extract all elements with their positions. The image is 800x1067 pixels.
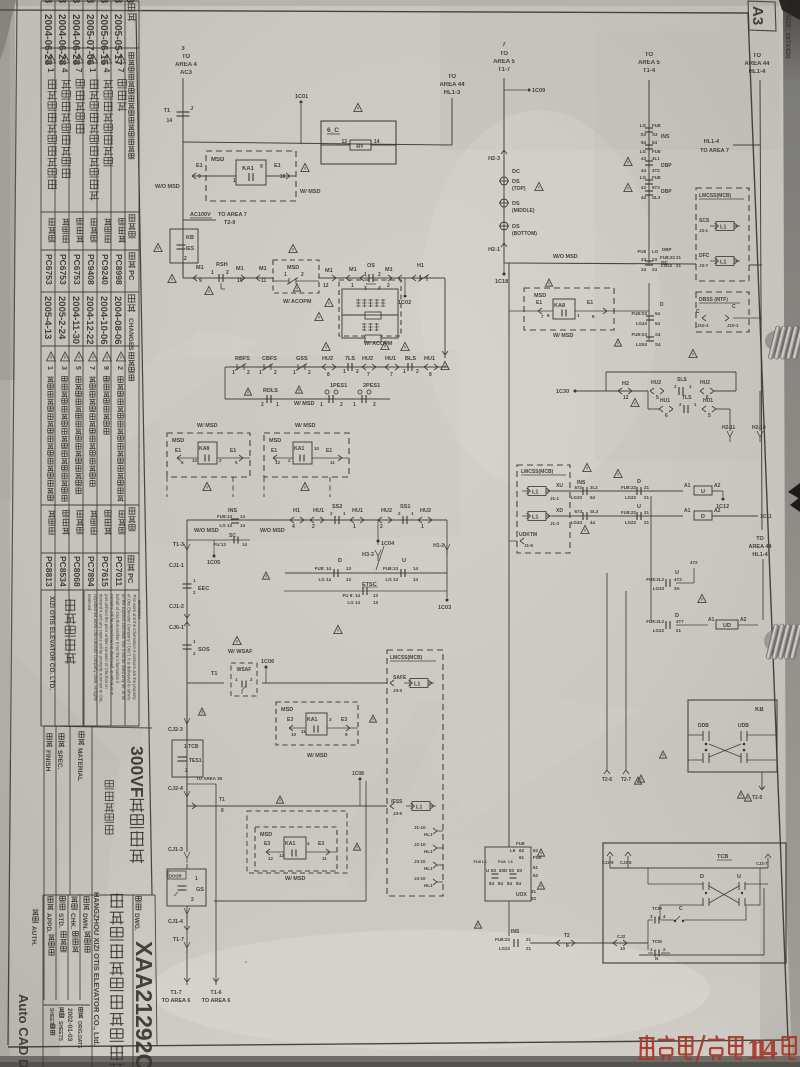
svg-text:MSD: MSD: [287, 265, 299, 271]
svg-text:CBFS: CBFS: [262, 356, 277, 362]
svg-text:1: 1: [233, 178, 236, 184]
svg-text:M1: M1: [236, 266, 244, 272]
svg-text:12: 12: [279, 853, 285, 858]
svg-text:2: 2: [308, 370, 311, 376]
svg-text:3A: 3A: [674, 586, 681, 591]
svg-text:LG33: LG33: [653, 586, 665, 591]
svg-text:4: 4: [292, 524, 295, 530]
svg-text:1: 1: [211, 270, 214, 276]
svg-text:2: 2: [312, 524, 315, 530]
svg-text:13: 13: [346, 577, 352, 582]
svg-text:FU 8: 14: FU 8: 14: [342, 593, 360, 598]
svg-text:J1-1: J1-1: [550, 496, 560, 501]
svg-text:672: 672: [574, 485, 582, 490]
svg-text:H3-3: H3-3: [362, 552, 374, 558]
svg-text:A1: A1: [708, 617, 715, 623]
svg-text:U: U: [701, 489, 705, 495]
svg-text:XD: XD: [556, 508, 563, 514]
svg-text:KB: KB: [755, 707, 764, 713]
svg-text:SC: SC: [229, 533, 236, 539]
svg-text:CJ2-9: CJ2-9: [602, 860, 614, 865]
svg-text:MSD: MSD: [211, 157, 225, 163]
svg-text:W/ MSD: W/ MSD: [197, 423, 217, 429]
svg-text:2: 2: [340, 402, 343, 408]
svg-text:6: 6: [221, 808, 224, 814]
svg-text:21: 21: [676, 255, 682, 260]
svg-text:E3: E3: [287, 717, 293, 723]
svg-text:CJ1-2: CJ1-2: [169, 604, 184, 610]
svg-text:PC7011: PC7011: [114, 556, 124, 587]
svg-text:24: 24: [641, 267, 647, 272]
svg-text:J3-3: J3-3: [393, 688, 403, 693]
svg-text:4: 4: [102, 68, 111, 73]
svg-text:L1: L1: [416, 805, 422, 811]
svg-text:XU: XU: [556, 483, 563, 489]
svg-text:LG 13: LG 13: [385, 577, 398, 582]
svg-text:E3: E3: [341, 717, 347, 723]
svg-text:12: 12: [268, 856, 274, 861]
svg-text:KA1: KA1: [307, 717, 317, 723]
svg-text:61: 61: [533, 865, 539, 870]
svg-text:AREA 44: AREA 44: [748, 544, 772, 550]
svg-text:TO: TO: [500, 51, 509, 57]
svg-text:21: 21: [676, 628, 682, 633]
svg-text:2: 2: [301, 272, 304, 278]
svg-text:CJ2: CJ2: [617, 934, 626, 939]
svg-text:LG43: LG43: [571, 520, 583, 525]
svg-text:2004-08-06: 2004-08-06: [112, 296, 123, 345]
svg-text:FU8: FU8: [498, 859, 506, 864]
svg-text:LG22: LG22: [661, 263, 673, 268]
svg-text:472: 472: [690, 560, 698, 565]
svg-text:FU8: FU8: [652, 175, 661, 180]
svg-text:SCS: SCS: [699, 218, 710, 224]
svg-text:10: 10: [237, 278, 243, 284]
svg-text:7: 7: [367, 372, 370, 378]
svg-text:DWG.: DWG.: [133, 913, 140, 931]
svg-text:1C02: 1C02: [398, 300, 411, 306]
svg-text:LG 14: LG 14: [318, 577, 331, 582]
svg-text:W/ ACOPM: W/ ACOPM: [283, 299, 312, 305]
svg-text:CJ2-3: CJ2-3: [168, 727, 183, 733]
svg-text:FU8:22: FU8:22: [621, 485, 637, 490]
svg-text:XIZI OTIS ELEVATOR CO. LTD.: XIZI OTIS ELEVATOR CO. LTD.: [48, 596, 55, 690]
svg-text:HU2: HU2: [651, 380, 661, 386]
svg-text:1C11: 1C11: [760, 514, 772, 520]
svg-text:12: 12: [275, 460, 281, 465]
svg-text:1C06: 1C06: [261, 659, 274, 665]
svg-text:9: 9: [102, 366, 109, 370]
svg-text:D: D: [338, 558, 342, 564]
svg-text:A2: A2: [714, 508, 721, 514]
svg-text:14: 14: [242, 542, 248, 547]
svg-text:ORIG.DATE: ORIG.DATE: [76, 1021, 82, 1049]
svg-text:6_C: 6_C: [327, 127, 339, 134]
svg-text:Auto CAD Draw: Auto CAD Draw: [16, 994, 31, 1067]
svg-text:S4: S4: [655, 332, 661, 337]
svg-text:LG22: LG22: [653, 628, 665, 633]
svg-text:21: 21: [676, 263, 682, 268]
svg-text:LG: LG: [652, 249, 659, 254]
svg-text:1C30: 1C30: [556, 389, 569, 395]
svg-text:A1: A1: [684, 508, 691, 514]
svg-text:2004-06-28: 2004-06-28: [112, 0, 123, 4]
svg-text:FU:13: FU:13: [213, 542, 226, 547]
svg-text:on the express condition that: on the express condition that it will be…: [121, 594, 126, 701]
svg-text:T1-6: T1-6: [210, 990, 221, 996]
svg-text:2005-4-13: 2005-4-13: [42, 296, 53, 339]
svg-text:L1: L1: [720, 225, 726, 231]
svg-text:E1: E1: [326, 448, 332, 454]
svg-text:(TOP): (TOP): [512, 186, 526, 192]
svg-text:M1: M1: [385, 267, 393, 273]
svg-text:W/O MSD: W/O MSD: [194, 528, 219, 534]
svg-text:D: D: [701, 514, 705, 520]
svg-text:43: 43: [641, 185, 647, 190]
svg-text:114: 114: [747, 1033, 778, 1066]
svg-text:FU8: FU8: [533, 855, 542, 860]
svg-text:83: 83: [517, 868, 523, 873]
svg-text:1C01: 1C01: [295, 94, 308, 100]
svg-text:LG: LG: [640, 123, 647, 128]
svg-text:31: 31: [531, 889, 537, 894]
svg-text:E3: E3: [264, 841, 270, 847]
svg-text:part,without the prior written: part,without the prior written consent o…: [104, 594, 109, 689]
svg-text:CHK.: CHK.: [69, 913, 76, 929]
svg-text:TO: TO: [756, 536, 764, 542]
svg-text:SL3: SL3: [652, 195, 661, 200]
svg-text:UDKTM: UDKTM: [519, 532, 537, 538]
svg-text:INS: INS: [661, 134, 670, 140]
svg-text:A1: A1: [684, 483, 691, 489]
svg-text:2: 2: [378, 272, 381, 278]
svg-text:IES: IES: [186, 246, 195, 252]
svg-text:HL1-4: HL1-4: [749, 69, 766, 75]
svg-text:This work and the information: This work and the information it contain…: [132, 594, 137, 701]
svg-text:INS: INS: [511, 929, 520, 935]
svg-text:FU8: FU8: [652, 149, 661, 154]
svg-text:14: 14: [413, 566, 419, 571]
svg-text:W/ MSD: W/ MSD: [307, 753, 327, 759]
svg-text:83: 83: [491, 868, 497, 873]
svg-text:DS: DS: [512, 224, 520, 230]
svg-text:KA8: KA8: [554, 303, 565, 309]
svg-text:DBSS (MTF): DBSS (MTF): [699, 297, 728, 303]
svg-text:LG22: LG22: [499, 946, 511, 951]
svg-text:DBP: DBP: [661, 189, 672, 195]
svg-text:13: 13: [373, 600, 379, 605]
svg-text:W/ MSD: W/ MSD: [294, 401, 314, 407]
svg-text:TO AREA 6: TO AREA 6: [162, 998, 191, 1004]
svg-text:TCM: TCM: [652, 939, 662, 944]
svg-text:FU8:22: FU8:22: [660, 255, 676, 260]
svg-text:Unpublished Work-Otis Elevator: Unpublished Work-Otis Elevator Company 1…: [93, 594, 98, 701]
svg-text:AREA 5: AREA 5: [493, 59, 515, 65]
svg-text:12: 12: [623, 395, 629, 401]
svg-text:1: 1: [293, 370, 296, 376]
svg-text:SS2: SS2: [332, 504, 342, 510]
svg-text:AREA 5: AREA 5: [638, 60, 660, 66]
svg-text:4: 4: [60, 68, 69, 73]
svg-text:2: 2: [184, 256, 187, 262]
svg-text:E1: E1: [274, 163, 281, 169]
svg-text:10: 10: [291, 732, 297, 737]
svg-text:DBP: DBP: [661, 163, 672, 169]
svg-text:XAA21292C: XAA21292C: [131, 941, 157, 1067]
svg-text:T1: T1: [211, 671, 217, 677]
svg-text:J1-3: J1-3: [550, 521, 560, 526]
svg-text:21: 21: [526, 937, 532, 942]
svg-text:TO AREA 35: TO AREA 35: [196, 776, 223, 781]
svg-text:2PES1: 2PES1: [363, 383, 380, 389]
svg-text:H2-11: H2-11: [722, 425, 736, 431]
svg-text:L1: L1: [414, 682, 420, 688]
svg-text:DOOR: DOOR: [169, 874, 182, 879]
svg-text:CJ2-7: CJ2-7: [756, 861, 768, 866]
svg-text:W/O MSD: W/O MSD: [553, 254, 578, 260]
svg-text:J3-5: J3-5: [393, 811, 403, 816]
svg-text:FU8:13: FU8:13: [217, 514, 233, 519]
svg-text:10: 10: [192, 458, 198, 463]
svg-text:A2: A2: [714, 483, 721, 489]
svg-text:HANGZHOU XIZI OTIS ELEVATOR CO: HANGZHOU XIZI OTIS ELEVATOR CO., Ltd.: [92, 892, 101, 1046]
svg-text:1C09: 1C09: [532, 88, 545, 94]
svg-text:E1: E1: [587, 300, 593, 306]
svg-text:J1-6: J1-6: [524, 543, 534, 548]
svg-text:C: C: [732, 304, 736, 310]
svg-text:MSD: MSD: [172, 438, 184, 444]
svg-text:L1: L1: [532, 490, 538, 496]
svg-text:21: 21: [644, 510, 650, 515]
svg-text:1: 1: [343, 369, 346, 375]
svg-text:LMCSS(MCB): LMCSS(MCB): [699, 193, 732, 199]
svg-text:1: 1: [320, 402, 323, 408]
svg-text:21: 21: [644, 495, 650, 500]
svg-text:1: 1: [403, 369, 406, 375]
svg-text:PC6753: PC6753: [58, 254, 68, 285]
svg-text:HU2: HU2: [322, 356, 333, 362]
svg-text:L6: L6: [482, 859, 487, 864]
svg-text:J2-10: J2-10: [414, 842, 426, 847]
svg-text:TO AREA 7: TO AREA 7: [218, 212, 247, 218]
svg-text:2004-10-06: 2004-10-06: [98, 296, 109, 345]
svg-text:RDLS: RDLS: [263, 388, 278, 394]
svg-text:PC7894: PC7894: [86, 556, 96, 587]
svg-text:7: 7: [88, 366, 95, 370]
svg-text:6: 6: [665, 413, 668, 419]
svg-text:2002-01-03: 2002-01-03: [66, 1008, 73, 1042]
svg-text:GSS: GSS: [296, 356, 308, 362]
svg-text:9: 9: [260, 164, 263, 170]
svg-text:SLS: SLS: [677, 377, 687, 383]
svg-text:(BOTTOM): (BOTTOM): [512, 231, 537, 237]
svg-text:T2-9: T2-9: [224, 220, 235, 226]
svg-text:E3: E3: [318, 841, 324, 847]
svg-text:W/ ACOPM: W/ ACOPM: [364, 341, 393, 347]
svg-text:2004-06-28: 2004-06-28: [98, 0, 109, 4]
svg-text:OS: OS: [367, 263, 375, 269]
svg-text:4T2: 4T2: [652, 168, 660, 173]
svg-text:43: 43: [641, 156, 647, 161]
svg-text:KA1: KA1: [242, 166, 255, 172]
svg-text:W/ MSD: W/ MSD: [285, 876, 305, 882]
svg-text:J4-10: J4-10: [414, 876, 426, 881]
svg-text:5: 5: [74, 366, 81, 370]
svg-text:FU8:22: FU8:22: [621, 510, 637, 515]
svg-text:AREA 44: AREA 44: [744, 61, 770, 67]
svg-text:2: 2: [116, 366, 123, 370]
svg-text:M1: M1: [325, 268, 333, 274]
svg-text:1: 1: [88, 68, 97, 73]
svg-text:21: 21: [644, 485, 650, 490]
svg-text:HL1: HL1: [424, 883, 433, 888]
svg-text:C: C: [696, 309, 700, 315]
svg-text:9: 9: [198, 174, 201, 180]
svg-text:TLS: TLS: [682, 395, 692, 401]
svg-text:54: 54: [590, 495, 596, 500]
svg-text:CJ2-8: CJ2-8: [620, 860, 632, 865]
svg-text:E1: E1: [196, 163, 203, 169]
svg-text:CJ2-4: CJ2-4: [168, 786, 184, 792]
svg-text:11: 11: [322, 856, 327, 861]
svg-text:BLS: BLS: [405, 356, 416, 362]
svg-text:1: 1: [364, 272, 367, 278]
svg-text:61: 61: [519, 855, 525, 860]
svg-text:4T2: 4T2: [674, 577, 682, 582]
svg-text:DWN.: DWN.: [81, 913, 88, 931]
svg-text:PC7615: PC7615: [100, 556, 110, 587]
svg-text:T2-6: T2-6: [602, 777, 613, 783]
svg-text:TO: TO: [753, 53, 762, 59]
svg-text:4T7: 4T7: [676, 619, 684, 624]
svg-text:U: U: [675, 570, 679, 576]
svg-text:H1: H1: [293, 508, 300, 514]
svg-text:H1-2: H1-2: [433, 543, 444, 549]
svg-text:HU2: HU2: [700, 380, 710, 386]
svg-text:13: 13: [373, 593, 379, 598]
svg-text:LMCSS(MCB): LMCSS(MCB): [521, 469, 554, 475]
svg-text:H2-1: H2-1: [488, 247, 500, 253]
svg-text:8: 8: [327, 372, 330, 378]
svg-text:PC6753: PC6753: [72, 254, 82, 285]
svg-text:TO AREA 6: TO AREA 6: [202, 998, 231, 1004]
svg-text:9: 9: [199, 278, 202, 284]
svg-text:2005-2-24: 2005-2-24: [56, 296, 67, 340]
svg-text:A2: A2: [740, 617, 747, 623]
svg-text:DS: DS: [512, 201, 520, 207]
svg-text:PC: PC: [126, 573, 135, 584]
svg-text:44: 44: [590, 520, 596, 525]
svg-text:2004-12-22: 2004-12-22: [84, 296, 95, 345]
svg-text:PC8813: PC8813: [44, 556, 54, 587]
svg-text:10: 10: [280, 174, 286, 180]
svg-text:RBFS: RBFS: [235, 356, 250, 362]
svg-text:84: 84: [489, 881, 495, 886]
svg-text:1PES1: 1PES1: [330, 383, 347, 389]
svg-text:2: 2: [356, 369, 359, 375]
svg-text:1: 1: [421, 524, 424, 530]
svg-text:(MIDDLE): (MIDDLE): [512, 208, 535, 214]
svg-text:SHEET: SHEET: [48, 1008, 54, 1025]
svg-text:7: 7: [116, 68, 125, 73]
svg-text:TO AREA 7: TO AREA 7: [700, 148, 729, 154]
svg-text:21: 21: [644, 520, 650, 525]
svg-text:MSD: MSD: [534, 293, 546, 299]
svg-text:2004-06-28: 2004-06-28: [84, 0, 95, 4]
svg-text:J: J: [190, 106, 193, 112]
svg-text:T1: T1: [219, 797, 225, 803]
svg-text:FU8:3L2: FU8:3L2: [646, 577, 664, 582]
svg-text:2: 2: [387, 283, 390, 289]
svg-text:HL1: HL1: [424, 849, 433, 854]
svg-text:FU8:S3: FU8:S3: [631, 332, 647, 337]
svg-text:54: 54: [641, 140, 647, 145]
svg-text:AUTH.: AUTH.: [30, 926, 37, 946]
svg-text:11: 11: [301, 729, 306, 734]
svg-text:E1: E1: [175, 448, 181, 454]
svg-text:STD.: STD.: [57, 913, 64, 928]
svg-text:AC100V: AC100V: [190, 212, 211, 218]
svg-text:T1-4: T1-4: [643, 68, 656, 74]
svg-text:2004-06-28: 2004-06-28: [56, 0, 67, 4]
svg-text:CJ1-4: CJ1-4: [168, 919, 184, 925]
svg-text:62: 62: [533, 848, 539, 853]
svg-text:PC9240: PC9240: [100, 254, 110, 285]
svg-text:contains will be reproduced or: contains will be reproduced or disclosed…: [110, 594, 115, 696]
svg-text:EEC: EEC: [198, 586, 209, 592]
svg-text:CHANGES: CHANGES: [127, 318, 134, 351]
svg-text:E1: E1: [271, 448, 277, 454]
svg-text:14: 14: [240, 523, 246, 528]
svg-text:MSD: MSD: [260, 832, 272, 838]
svg-text:J10-3: J10-3: [697, 323, 709, 328]
svg-text:U: U: [637, 504, 641, 510]
svg-text:TO: TO: [448, 74, 457, 80]
svg-text:L1: L1: [720, 260, 726, 266]
svg-text:300VF: 300VF: [127, 746, 147, 798]
svg-text:84: 84: [507, 881, 513, 886]
svg-text:FU8:S3: FU8:S3: [631, 311, 647, 316]
svg-text:FU8:3L2: FU8:3L2: [646, 619, 664, 624]
svg-text:2: 2: [226, 270, 229, 276]
svg-text:M1: M1: [196, 265, 204, 271]
svg-text:62: 62: [519, 848, 525, 853]
svg-text:J3-10: J3-10: [414, 859, 426, 864]
svg-text:PC9408: PC9408: [86, 254, 96, 285]
svg-text:UOX: UOX: [516, 892, 528, 898]
svg-text:12: 12: [323, 283, 329, 289]
svg-text:J3-7: J3-7: [699, 263, 709, 268]
svg-text:FU8: 14: FU8: 14: [315, 566, 332, 571]
svg-text:SPEC.: SPEC.: [56, 750, 63, 770]
svg-text:M1: M1: [259, 266, 267, 272]
svg-text:MSD: MSD: [269, 438, 281, 444]
svg-text:HL1: HL1: [424, 866, 433, 871]
svg-text:L6: L6: [508, 859, 513, 864]
svg-text:SIZE: 297X420: SIZE: 297X420: [784, 14, 791, 59]
svg-text:TCB: TCB: [717, 854, 728, 860]
svg-text:W/ MSD: W/ MSD: [295, 423, 315, 429]
svg-text:1C05: 1C05: [207, 560, 220, 566]
svg-text:1: 1: [259, 370, 262, 376]
svg-text:21: 21: [526, 946, 532, 951]
svg-text:HU1: HU1: [424, 356, 435, 362]
svg-text:KA1: KA1: [285, 841, 295, 847]
svg-text:DS: DS: [512, 179, 520, 185]
svg-text:13: 13: [346, 566, 352, 571]
svg-text:1: 1: [46, 366, 53, 370]
svg-text:CJ6-1: CJ6-1: [169, 625, 184, 631]
